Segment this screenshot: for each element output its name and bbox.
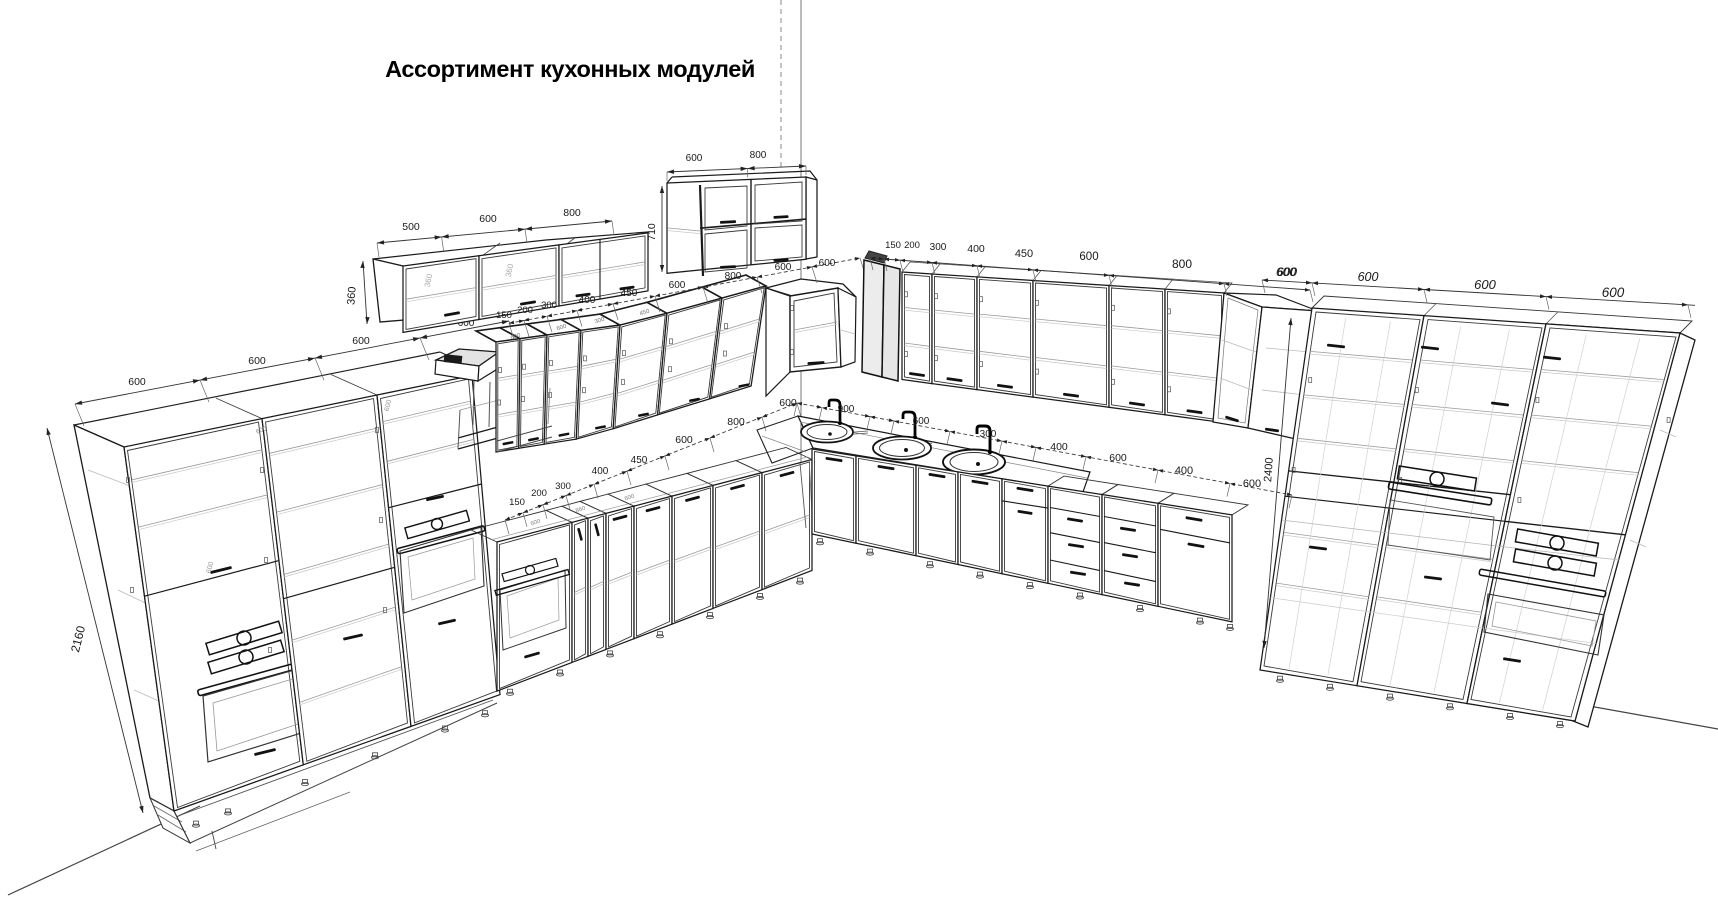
svg-text:600: 600 xyxy=(352,335,370,347)
svg-text:450: 450 xyxy=(621,288,638,299)
svg-text:400: 400 xyxy=(592,466,609,477)
svg-text:Ассортимент кухонных модулей: Ассортимент кухонных модулей xyxy=(385,56,755,82)
svg-text:600: 600 xyxy=(479,213,497,225)
svg-text:600: 600 xyxy=(913,416,930,427)
svg-text:300: 300 xyxy=(541,300,557,311)
svg-text:450: 450 xyxy=(1015,248,1033,260)
svg-text:600: 600 xyxy=(1358,270,1379,284)
svg-text:800: 800 xyxy=(563,207,581,219)
svg-text:800: 800 xyxy=(1172,257,1192,271)
svg-text:600: 600 xyxy=(1602,285,1625,300)
svg-text:600: 600 xyxy=(669,280,686,291)
svg-text:600: 600 xyxy=(819,258,836,269)
svg-text:150: 150 xyxy=(496,310,512,321)
svg-text:900: 900 xyxy=(838,404,855,415)
svg-text:600: 600 xyxy=(128,376,146,388)
svg-text:600: 600 xyxy=(1079,251,1098,263)
svg-text:600: 600 xyxy=(775,262,792,273)
svg-text:600: 600 xyxy=(1243,478,1261,490)
svg-text:600: 600 xyxy=(1474,277,1496,292)
svg-text:150: 150 xyxy=(509,497,525,508)
svg-text:600: 600 xyxy=(686,153,703,164)
svg-text:600: 600 xyxy=(1109,452,1127,464)
svg-text:600: 600 xyxy=(248,355,266,367)
svg-text:710: 710 xyxy=(646,223,658,241)
svg-text:800: 800 xyxy=(725,271,742,282)
svg-text:400: 400 xyxy=(1050,441,1068,453)
svg-text:300: 300 xyxy=(980,429,997,440)
svg-text:200: 200 xyxy=(904,240,920,251)
svg-text:200: 200 xyxy=(531,488,547,499)
svg-text:600: 600 xyxy=(675,434,693,446)
svg-text:2400: 2400 xyxy=(1262,457,1276,482)
svg-text:150: 150 xyxy=(885,240,901,251)
svg-text:450: 450 xyxy=(631,455,648,466)
svg-text:300: 300 xyxy=(930,242,947,253)
svg-text:600: 600 xyxy=(779,397,797,409)
svg-text:200: 200 xyxy=(517,305,533,316)
svg-text:500: 500 xyxy=(402,221,420,233)
svg-text:400: 400 xyxy=(579,295,596,306)
svg-text:600: 600 xyxy=(1277,265,1297,279)
svg-text:360: 360 xyxy=(345,286,358,305)
svg-text:400: 400 xyxy=(1175,465,1193,477)
svg-text:300: 300 xyxy=(555,481,571,492)
svg-text:800: 800 xyxy=(750,150,767,161)
svg-text:800: 800 xyxy=(727,416,745,428)
svg-text:400: 400 xyxy=(967,243,985,255)
